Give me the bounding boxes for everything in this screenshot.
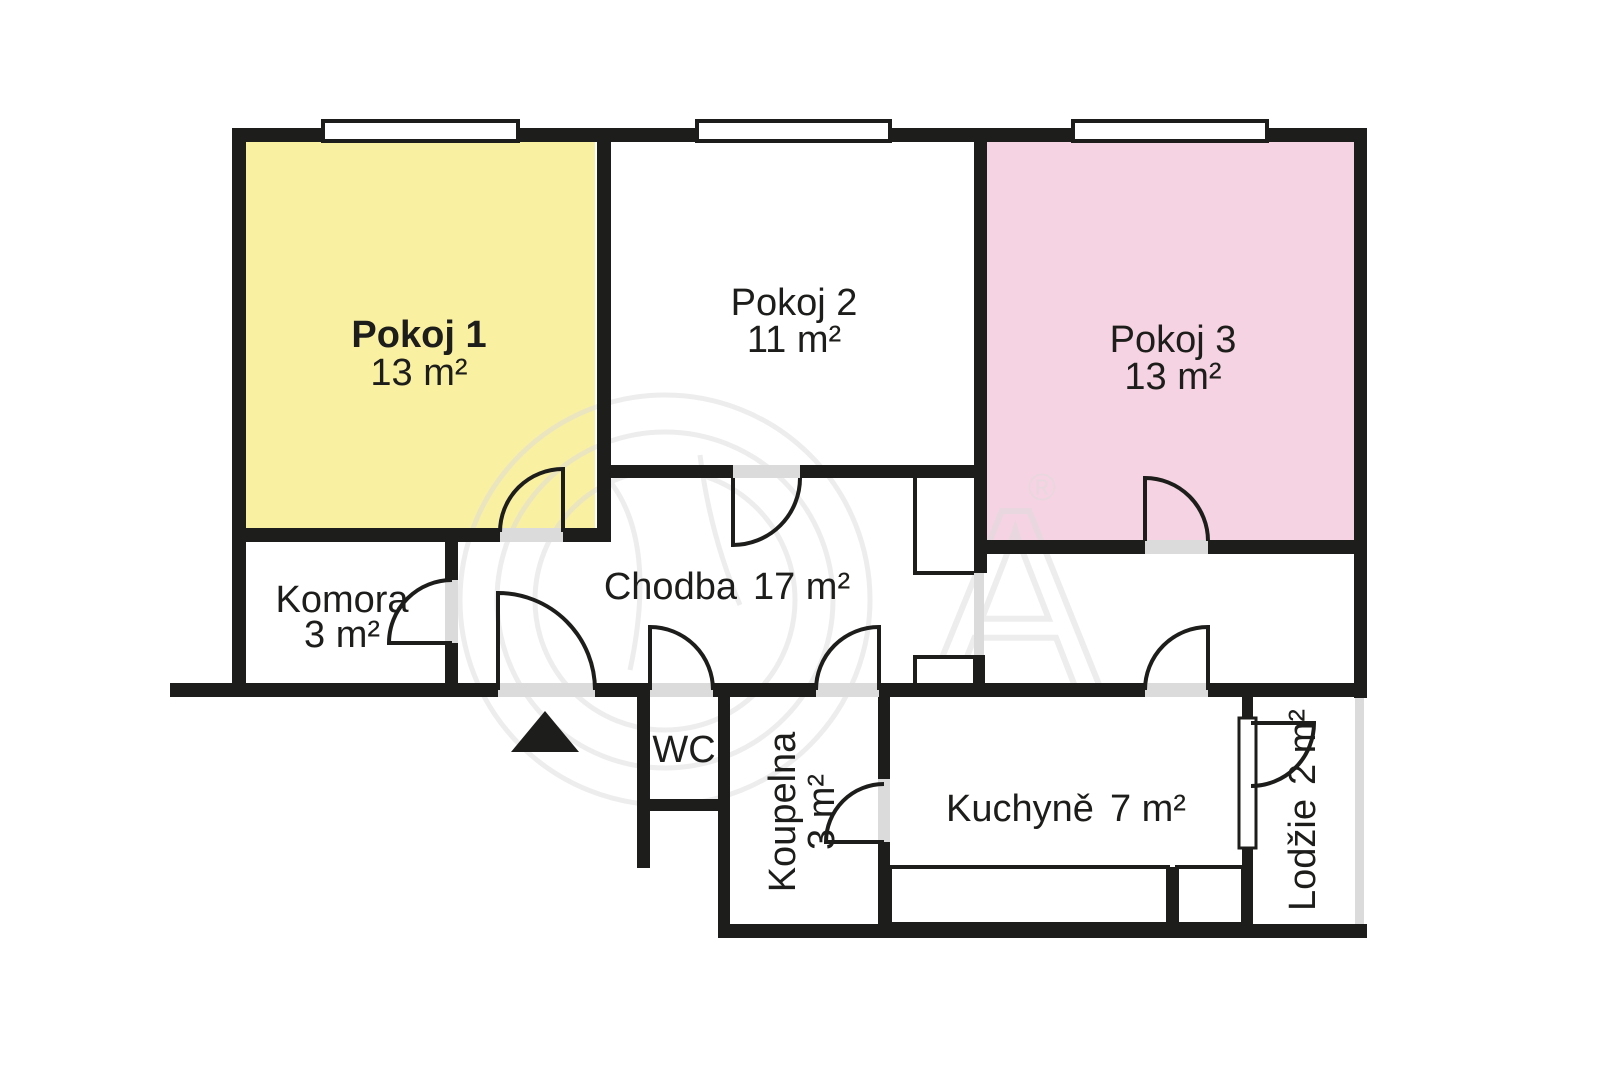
room-label-kuchyne: Kuchyně7 m² [946,788,1186,830]
room-name: Koupelna [762,731,804,892]
room-label-koupelna: Koupelna 3 m² [762,731,843,892]
room-name: Pokoj 2 [731,282,858,324]
kitchen-counter-small [1177,867,1243,924]
room-area: 3 m² [801,774,843,850]
hall-closet-box [915,475,977,573]
room-area: 2 m² [1282,709,1324,785]
floor-plan: A ® Pokoj 1 13 m² [0,0,1600,1066]
registered-trademark-icon: ® [1028,467,1056,509]
room-label-wc: WC [652,729,715,771]
room-area: 11 m² [747,319,841,361]
room-area: 13 m² [370,352,467,394]
window-pokoj2 [697,121,890,141]
room-name: Lodžie [1282,799,1324,911]
room-label-chodba: Chodba17 m² [604,566,850,608]
window-pokoj1 [323,121,518,141]
door-arc-kuchyne [1145,627,1208,690]
entrance-arrow-icon [511,711,579,752]
room-area: 3 m² [304,614,380,656]
floor-plan-page: A ® Pokoj 1 13 m² [0,0,1600,1066]
windows [323,121,1267,141]
room-area: 7 m² [1110,788,1186,830]
room-label-pokoj2: Pokoj 2 11 m² [731,282,858,361]
room-label-lodzie: Lodžie2 m² [1282,709,1324,911]
room-area: 17 m² [753,566,850,608]
room-name: Chodba [604,566,738,608]
room-name: Kuchyně [946,788,1094,830]
svg-text:Lodžie2 m²: Lodžie2 m² [1282,709,1324,911]
room-labels: Pokoj 1 13 m² Pokoj 2 11 m² Pokoj 3 13 m… [275,282,1324,911]
room-name: Pokoj 1 [351,314,486,356]
room-label-pokoj1: Pokoj 1 13 m² [351,314,486,394]
svg-text:Kuchyně7 m²: Kuchyně7 m² [946,788,1186,830]
room-name: WC [652,729,715,771]
svg-text:Chodba17 m²: Chodba17 m² [604,566,850,608]
watermark-curve [600,455,740,670]
door-arc-wc [650,627,713,690]
window-pokoj3 [1073,121,1267,141]
door-arc-koupelna [816,627,879,690]
kitchen-counter [890,867,1168,924]
balcony-door-leaf [1239,718,1256,848]
room-label-pokoj3: Pokoj 3 13 m² [1110,319,1237,398]
room-area: 13 m² [1124,356,1221,398]
room-name: Pokoj 3 [1110,319,1237,361]
